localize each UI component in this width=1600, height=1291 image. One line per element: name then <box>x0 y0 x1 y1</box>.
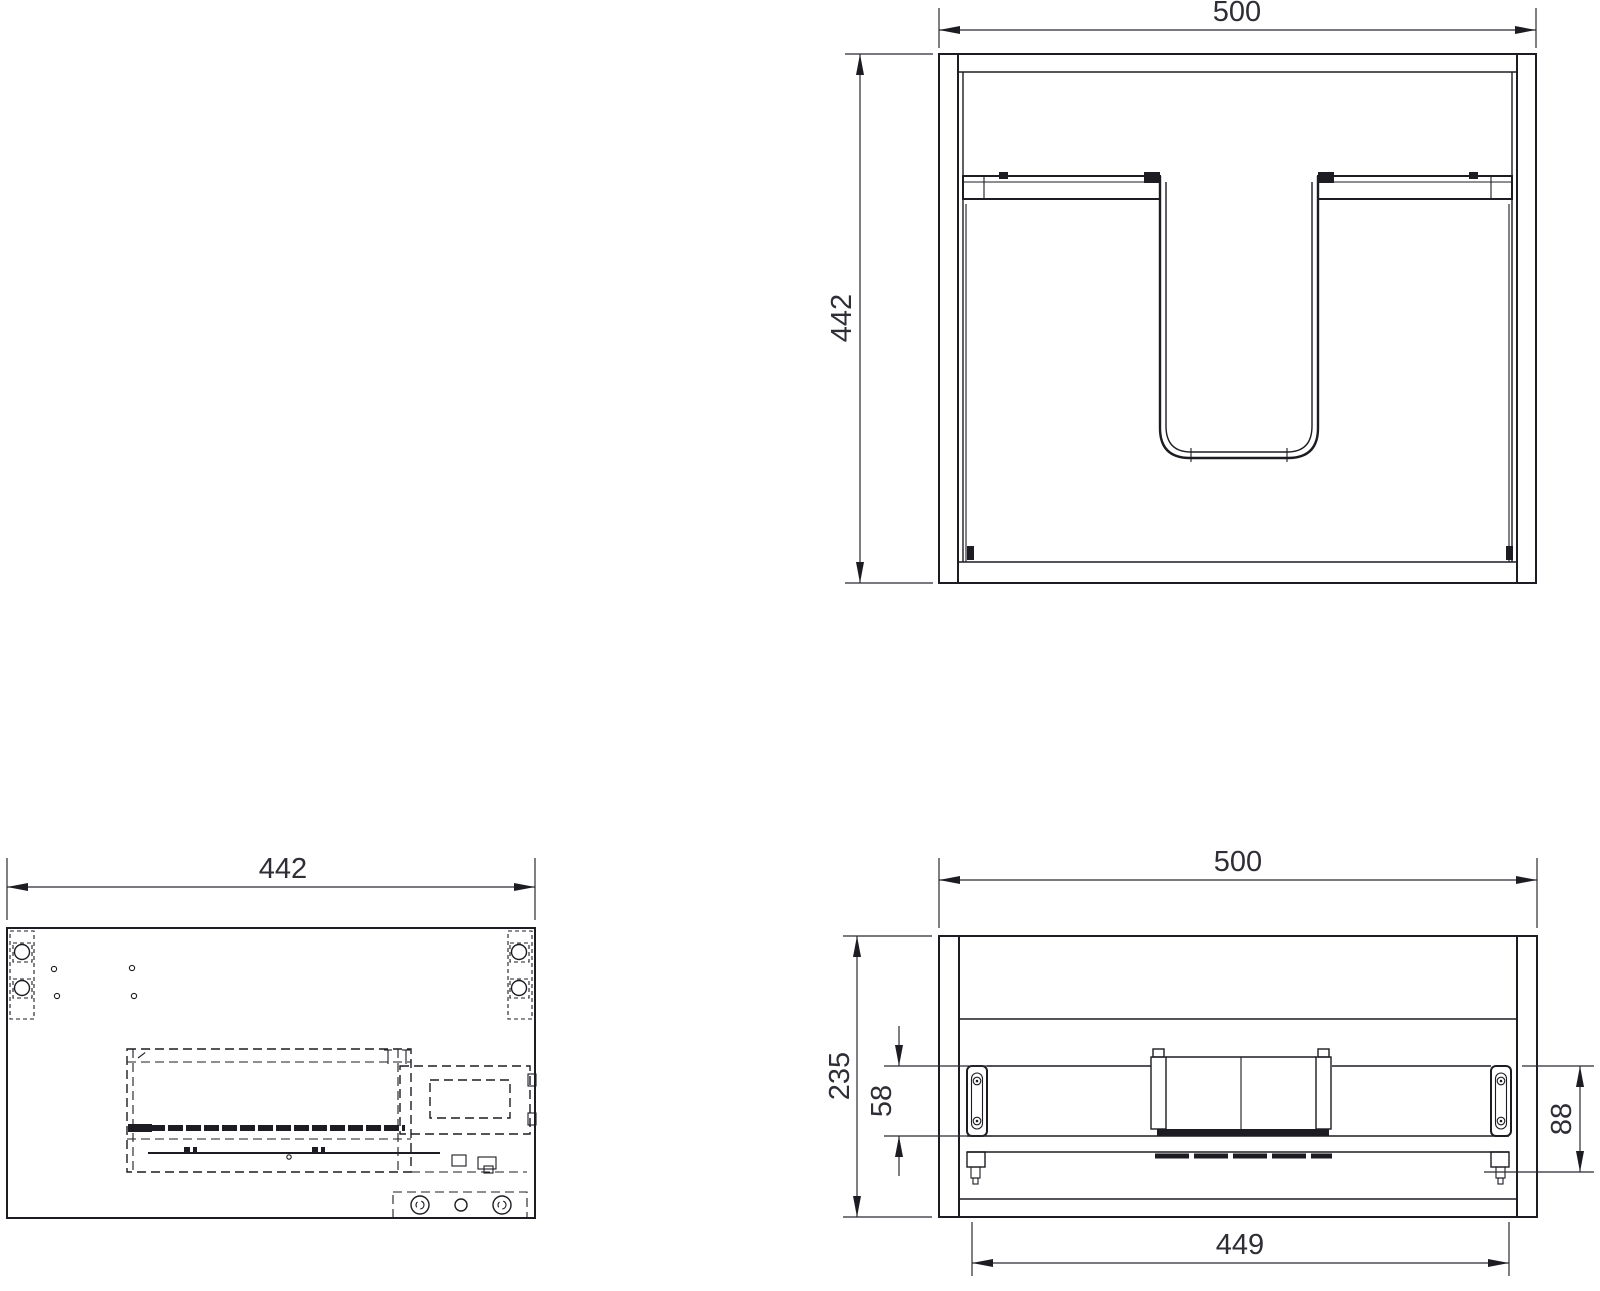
front-view <box>939 54 1536 583</box>
dim-front-width: 500 <box>939 0 1536 48</box>
dim-label-bottom-width: 500 <box>1214 846 1262 878</box>
technical-drawing: 500 442 <box>0 0 1600 1291</box>
screw-hole-marks <box>51 965 136 998</box>
hanging-bracket-left <box>967 1066 987 1136</box>
slide-stop-right <box>1506 546 1513 560</box>
bottom-view <box>939 936 1537 1217</box>
dim-label-bottom-depth: 235 <box>824 1052 856 1100</box>
dim-front-height: 442 <box>826 54 933 583</box>
siphon-cutout <box>1160 176 1318 462</box>
slide-stop-left <box>967 546 974 560</box>
dim-label-clearance: 88 <box>1546 1103 1578 1135</box>
dim-bottom-depth: 235 <box>824 936 932 1217</box>
wall-bracket-left <box>10 931 34 1019</box>
side-view <box>7 928 536 1218</box>
dim-mount-span: 449 <box>972 1222 1509 1276</box>
drawing-canvas: 500 442 <box>0 0 1600 1291</box>
dim-side-length: 442 <box>7 853 535 920</box>
runner-box-hidden <box>400 1066 536 1173</box>
foot-left <box>967 1152 985 1184</box>
hanging-bracket-right <box>1491 1066 1511 1136</box>
drawer-rail-right <box>1318 172 1512 199</box>
dim-label-front-width: 500 <box>1213 0 1261 28</box>
dim-label-front-height: 442 <box>826 294 858 342</box>
dim-label-bracket-height: 58 <box>866 1085 898 1117</box>
drawer-assembly-hidden <box>127 1049 440 1172</box>
dim-label-mount-span: 449 <box>1216 1229 1264 1261</box>
wall-bracket-right <box>508 931 532 1019</box>
drawer-rail-left <box>963 172 1160 199</box>
drain-cutout-block <box>1151 1049 1331 1136</box>
foot-right <box>1491 1152 1509 1184</box>
dim-bracket-height: 58 <box>866 1026 992 1176</box>
fixing-band-hidden <box>393 1192 527 1218</box>
dim-bottom-width: 500 <box>939 846 1537 928</box>
dim-label-side-length: 442 <box>259 853 307 885</box>
